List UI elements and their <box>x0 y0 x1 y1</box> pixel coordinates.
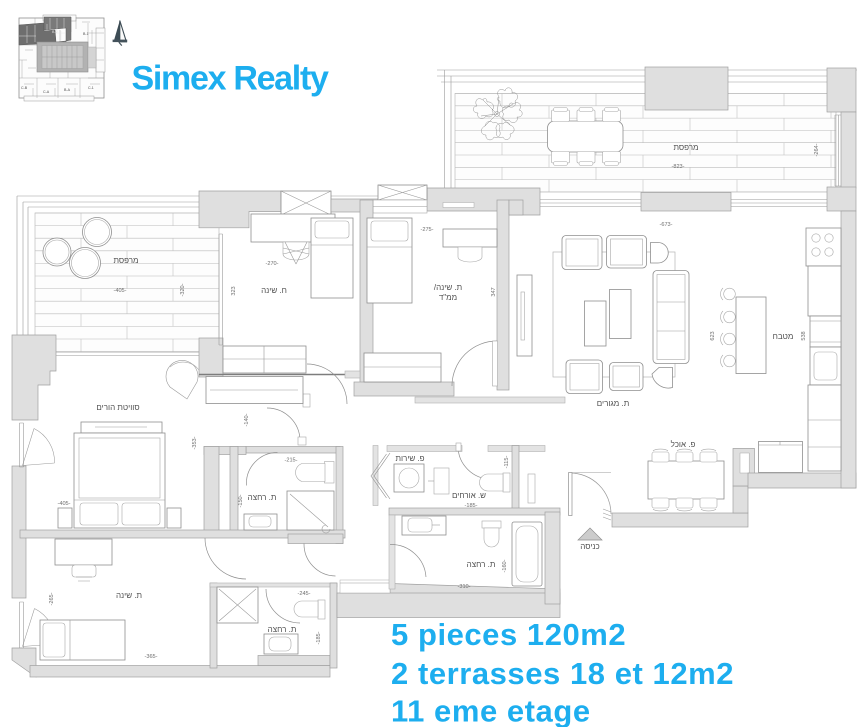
svg-text:11 eme etage: 11 eme etage <box>391 694 591 727</box>
svg-text:-245-: -245- <box>297 591 310 597</box>
svg-text:ת. מגורים: ת. מגורים <box>597 399 630 408</box>
svg-text:-353-: -353- <box>192 436 198 449</box>
svg-text:-270-: -270- <box>265 261 278 267</box>
svg-text:ת. שינה‏/‏: ת. שינה‏/‏ <box>434 283 462 292</box>
svg-text:ש. אורחים: ש. אורחים <box>452 491 486 500</box>
svg-text:-150-: -150- <box>238 494 244 507</box>
svg-text:C-A: C-A <box>43 90 50 94</box>
svg-text:-185-: -185- <box>464 503 477 509</box>
svg-text:ת. שינה: ת. שינה <box>116 591 142 600</box>
svg-text:323: 323 <box>231 286 237 295</box>
svg-text:2 terrasses 18 et 12m2: 2 terrasses 18 et 12m2 <box>391 656 734 691</box>
svg-text:מטבח: מטבח <box>773 332 794 341</box>
svg-text:C-1: C-1 <box>88 86 94 90</box>
svg-text:538: 538 <box>801 331 807 340</box>
svg-text:פ. שירות: פ. שירות <box>395 454 424 463</box>
svg-text:ת. רחצה: ת. רחצה <box>248 493 277 502</box>
svg-text:-264-: -264- <box>814 143 820 156</box>
svg-text:מרפסת: מרפסת <box>113 256 138 265</box>
svg-text:-275-: -275- <box>420 227 433 233</box>
svg-text:פ. אוכל: פ. אוכל <box>671 440 696 449</box>
svg-text:ח. שינה: ח. שינה <box>261 286 287 295</box>
svg-text:-823-: -823- <box>671 164 684 170</box>
svg-text:-320-: -320- <box>180 283 186 296</box>
svg-text:-160-: -160- <box>502 559 508 572</box>
svg-text:-365-: -365- <box>144 654 157 660</box>
svg-text:-405-: -405- <box>113 288 126 294</box>
svg-text:-140-: -140- <box>244 413 250 426</box>
svg-text:B-1: B-1 <box>83 32 89 36</box>
svg-text:5 pieces 120m2: 5 pieces 120m2 <box>391 617 626 652</box>
svg-text:-310-: -310- <box>457 584 470 590</box>
svg-text:B-2: B-2 <box>52 30 58 34</box>
svg-text:Simex Realty: Simex Realty <box>132 60 329 98</box>
svg-text:-405-: -405- <box>57 501 70 507</box>
svg-text:-265-: -265- <box>49 592 55 605</box>
svg-text:C-B: C-B <box>21 86 28 90</box>
svg-text:-115-: -115- <box>504 456 510 469</box>
svg-text:-673-: -673- <box>659 222 672 228</box>
svg-text:ממ"ד: ממ"ד <box>439 293 457 302</box>
svg-text:ת. רחצה: ת. רחצה <box>268 625 297 634</box>
svg-text:מרפסת: מרפסת <box>673 143 698 152</box>
svg-text:ת. רחצה: ת. רחצה <box>467 560 496 569</box>
svg-text:כניסה: כניסה <box>580 542 599 551</box>
svg-text:-215-: -215- <box>284 458 297 464</box>
svg-text:סוויטת הורים: סוויטת הורים <box>96 403 139 412</box>
svg-text:-185-: -185- <box>316 631 322 644</box>
svg-text:B-A: B-A <box>64 88 71 92</box>
svg-text:347: 347 <box>491 287 497 296</box>
svg-text:623: 623 <box>710 331 716 340</box>
